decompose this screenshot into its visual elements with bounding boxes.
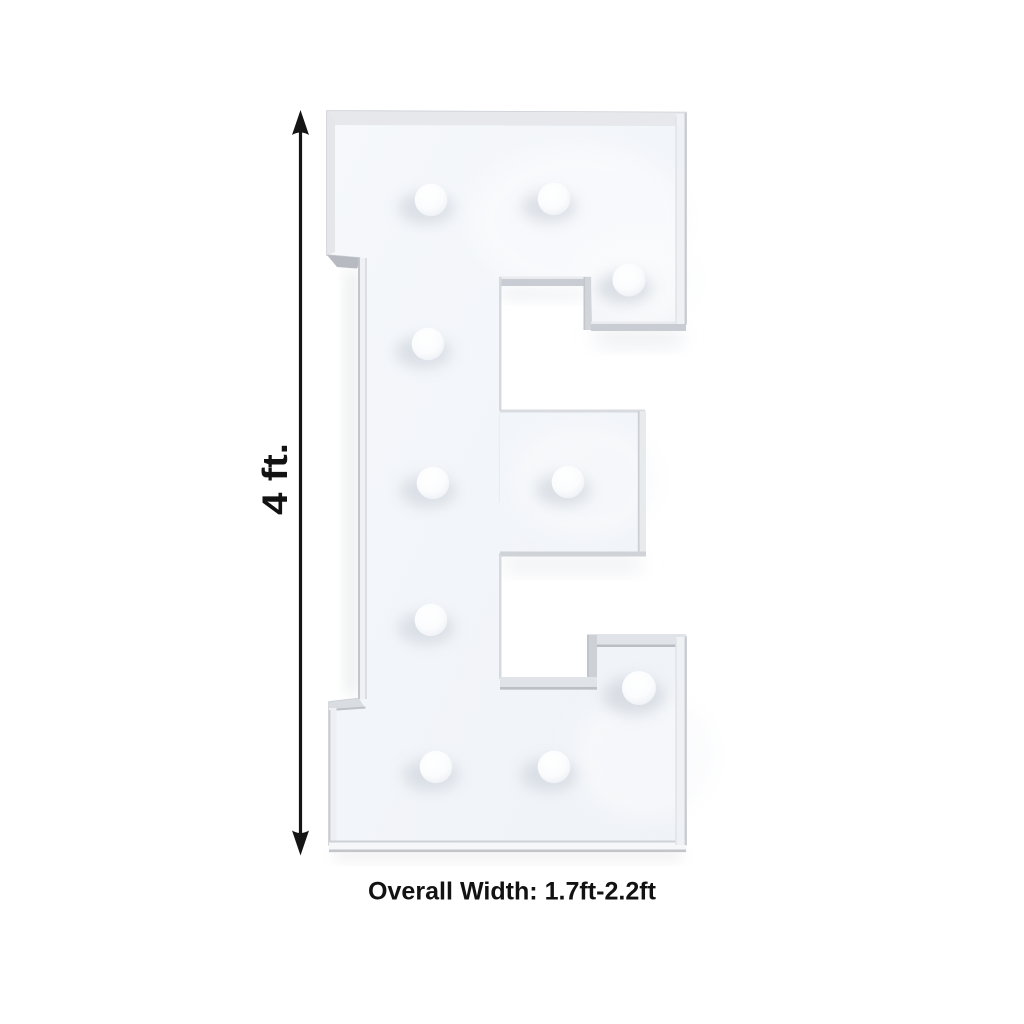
svg-text:Overall Width: 1.7ft-2.2ft: Overall Width: 1.7ft-2.2ft (368, 878, 657, 906)
svg-text:4 ft.: 4 ft. (256, 443, 295, 515)
